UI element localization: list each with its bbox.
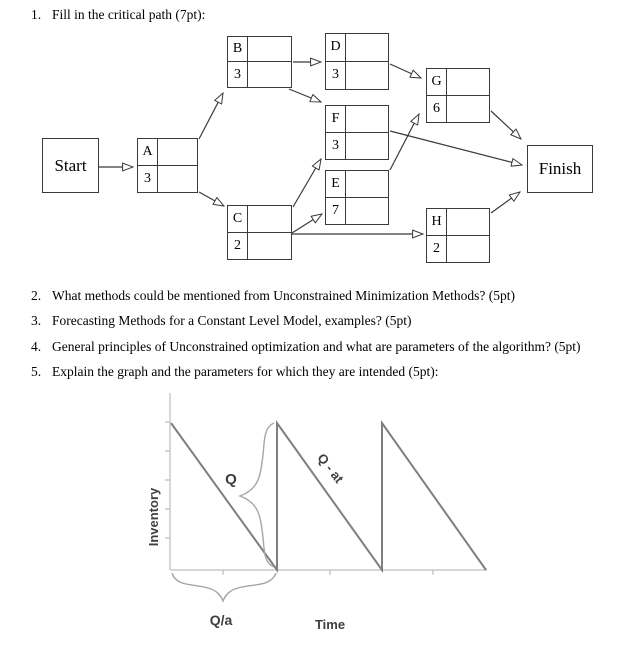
y-axis-title: Inventory <box>146 487 161 546</box>
edge-d-g <box>390 64 421 78</box>
node-f-empty-bottom <box>346 133 388 160</box>
edge-c-f <box>293 159 321 207</box>
question-4-number: 4. <box>31 339 52 355</box>
x-axis-title: Time <box>315 617 345 632</box>
question-4: 4. General principles of Unconstrained o… <box>31 339 581 355</box>
y-axis-ticks <box>165 422 170 538</box>
edge-c-e <box>292 214 322 233</box>
node-h-duration: 2 <box>427 236 447 263</box>
node-f-id: F <box>326 106 346 133</box>
node-e-empty-bottom <box>346 198 388 225</box>
edge-f-finish <box>390 131 522 165</box>
node-h-empty-bottom <box>447 236 489 263</box>
brace-q-vertical <box>240 423 274 567</box>
node-d-empty-top <box>346 34 388 62</box>
node-g-duration: 6 <box>427 96 447 123</box>
node-c-id: C <box>228 206 248 233</box>
node-c-duration: 2 <box>228 233 248 260</box>
node-b-id: B <box>228 37 248 62</box>
question-5: 5. Explain the graph and the parameters … <box>31 364 438 380</box>
node-d: D 3 <box>325 33 389 90</box>
question-3-text: Forecasting Methods for a Constant Level… <box>52 313 412 329</box>
question-2: 2. What methods could be mentioned from … <box>31 288 515 304</box>
node-c-empty-top <box>248 206 291 233</box>
node-a: A 3 <box>137 138 198 193</box>
inventory-chart: Q Q - at Q/a Time Inventory <box>146 393 487 632</box>
node-d-empty-bottom <box>346 62 388 90</box>
node-d-duration: 3 <box>326 62 346 90</box>
question-2-text: What methods could be mentioned from Unc… <box>52 288 515 304</box>
node-h-id: H <box>427 209 447 236</box>
question-3: 3. Forecasting Methods for a Constant Le… <box>31 313 412 329</box>
chart-axes <box>165 393 487 575</box>
brace-qa-horizontal <box>172 573 276 601</box>
question-4-text: General principles of Unconstrained opti… <box>52 339 581 355</box>
x-axis-ticks <box>223 570 433 575</box>
node-g: G 6 <box>426 68 490 123</box>
node-e-empty-top <box>346 171 388 198</box>
node-start: Start <box>42 138 99 193</box>
node-c: C 2 <box>227 205 292 260</box>
edge-e-g <box>390 114 419 170</box>
edge-b-f <box>289 89 321 102</box>
node-b: B 3 <box>227 36 292 88</box>
question-5-text: Explain the graph and the parameters for… <box>52 364 438 380</box>
node-h: H 2 <box>426 208 490 263</box>
node-f: F 3 <box>325 105 389 160</box>
question-5-number: 5. <box>31 364 52 380</box>
edge-h-finish <box>491 192 520 213</box>
edge-a-b <box>199 93 223 139</box>
node-e-duration: 7 <box>326 198 346 225</box>
label-q: Q <box>225 471 237 488</box>
node-c-empty-bottom <box>248 233 291 260</box>
sawtooth-line <box>171 423 486 570</box>
edge-g-finish <box>491 111 521 139</box>
node-a-id: A <box>138 139 158 166</box>
node-f-empty-top <box>346 106 388 133</box>
node-b-duration: 3 <box>228 62 248 87</box>
node-finish: Finish <box>527 145 593 193</box>
node-a-empty-bottom <box>158 166 197 193</box>
node-g-empty-bottom <box>447 96 489 123</box>
label-q-over-a: Q/a <box>210 612 233 628</box>
node-f-duration: 3 <box>326 133 346 160</box>
node-e: E 7 <box>325 170 389 225</box>
question-3-number: 3. <box>31 313 52 329</box>
node-b-empty-bottom <box>248 62 291 87</box>
document-page: 1. Fill in the critical path (7pt): <box>0 0 621 646</box>
node-g-id: G <box>427 69 447 96</box>
node-a-duration: 3 <box>138 166 158 193</box>
edge-a-c <box>199 192 224 206</box>
node-g-empty-top <box>447 69 489 96</box>
node-a-empty-top <box>158 139 197 166</box>
question-2-number: 2. <box>31 288 52 304</box>
node-finish-label: Finish <box>539 159 582 179</box>
node-b-empty-top <box>248 37 291 62</box>
node-e-id: E <box>326 171 346 198</box>
node-start-label: Start <box>54 156 86 176</box>
node-h-empty-top <box>447 209 489 236</box>
node-d-id: D <box>326 34 346 62</box>
